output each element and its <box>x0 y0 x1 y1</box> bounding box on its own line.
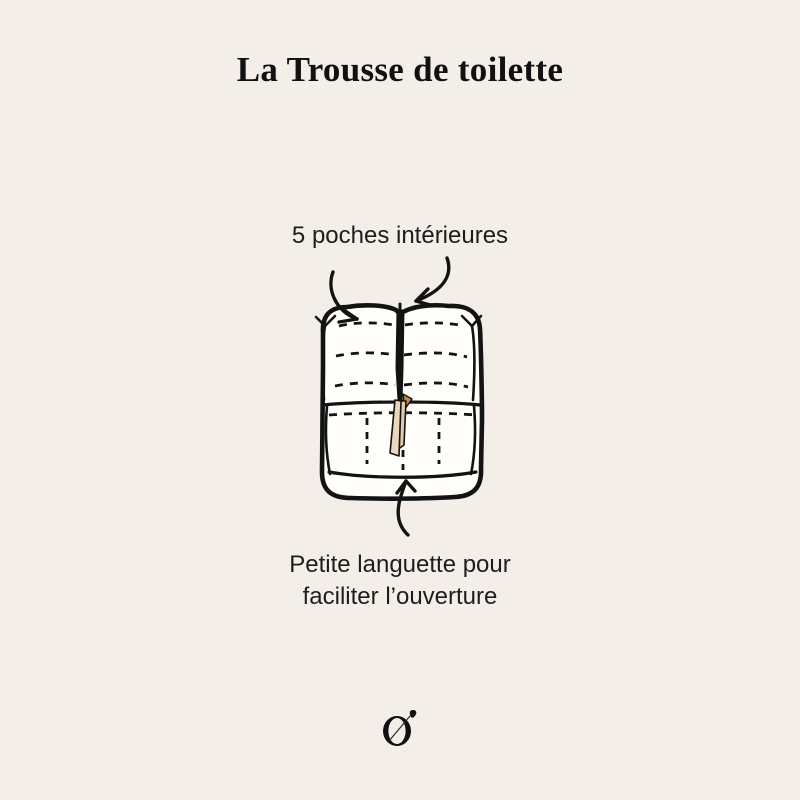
annotation-tab: Petite languette pour faciliter l’ouvert… <box>0 549 800 613</box>
brand-monogram-icon <box>376 704 424 752</box>
arrow-to-right-pocket <box>416 258 449 305</box>
infographic-canvas: La Trousse de toilette 5 poches intérieu… <box>0 0 800 800</box>
bag-body <box>316 304 482 499</box>
annotation-tab-line2: faciliter l’ouverture <box>303 583 498 610</box>
page-title: La Trousse de toilette <box>0 50 800 90</box>
leaf-mark <box>410 710 417 718</box>
annotation-tab-line1: Petite languette pour <box>289 551 511 578</box>
brand-logo <box>0 704 800 752</box>
toiletry-bag-illustration <box>283 248 517 548</box>
zipper-band <box>396 310 404 400</box>
